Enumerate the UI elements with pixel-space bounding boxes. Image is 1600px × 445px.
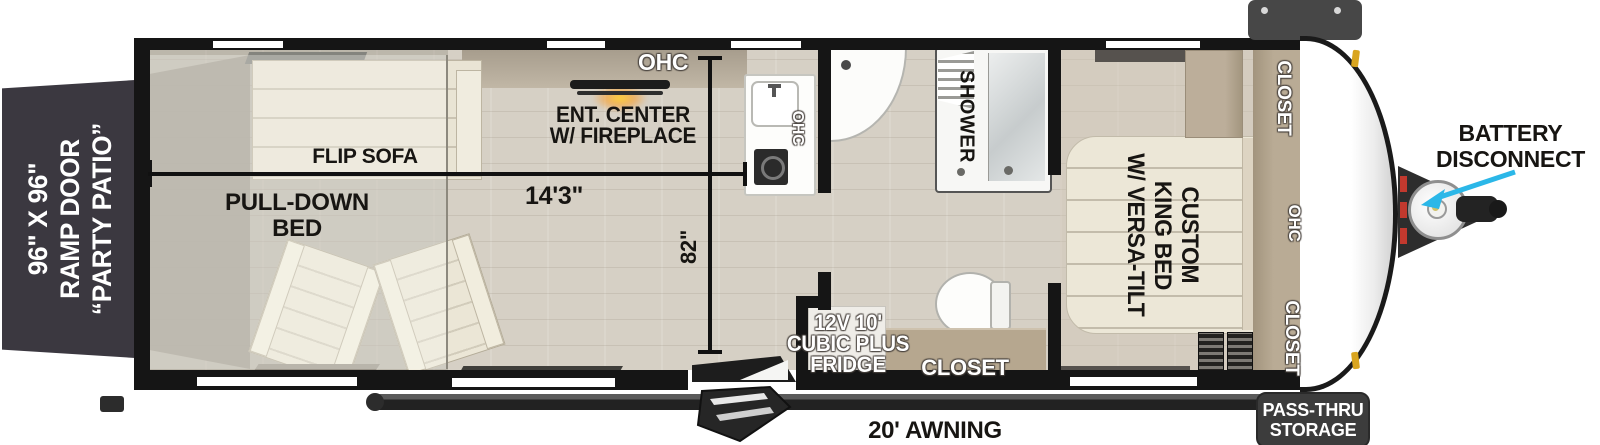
reflector-icon	[1400, 202, 1407, 218]
bedroom-window-strip-top	[1095, 48, 1195, 62]
ohc-kitchen-label: OHC	[788, 101, 806, 155]
cooktop-burner-icon	[761, 156, 785, 180]
pull-down-bed-label: PULL-DOWN BED	[222, 190, 372, 242]
fold-out-steps	[690, 385, 800, 445]
awning-bar	[372, 394, 1312, 410]
bedroom-wall-lower	[1048, 283, 1061, 372]
floorplan-canvas: 96" X 96" RAMP DOOR “PARTY PATIO”	[0, 0, 1600, 445]
flip-sofa-label: FLIP SOFA	[300, 145, 430, 169]
fireplace-icon	[570, 80, 670, 89]
front-closet-bottom-label: CLOSET	[1280, 293, 1302, 383]
corner-sink-faucet-icon	[841, 60, 851, 70]
window-top-bedroom	[1106, 41, 1200, 48]
battery-callout-arrow-icon	[1415, 165, 1520, 213]
window-bottom-bedroom	[1070, 377, 1197, 386]
shower-head-icon	[1004, 166, 1013, 175]
interior-width-dimension: 82"	[676, 222, 702, 272]
fireplace-icon-lower-bar	[577, 91, 663, 95]
window-top-living	[547, 41, 605, 48]
reflector-icon	[1400, 176, 1407, 192]
reflector-icon	[1400, 228, 1407, 244]
bed-step-vent-right	[1227, 332, 1253, 374]
flip-sofa-armrest	[456, 70, 482, 176]
ohc-living-label: OHC	[638, 49, 688, 76]
awning-arm-cap	[366, 393, 384, 411]
clearance-light-top	[1351, 50, 1360, 68]
dimension-line-width	[708, 58, 712, 354]
garage-length-dimension: 14'3"	[525, 182, 583, 211]
bed-step-vent-left	[1198, 332, 1224, 374]
nightstand	[1185, 50, 1243, 138]
awning-label: 20' AWNING	[855, 417, 1015, 445]
dimension-tick-width-top	[698, 56, 722, 60]
king-bed-label: CUSTOM KING BED W/ VERSA-TILT	[1121, 150, 1205, 320]
ohc-bedroom-label: OHC	[1284, 196, 1304, 250]
ramp-door-label: 96" X 96" RAMP DOOR “PARTY PATIO”	[19, 66, 121, 373]
dimension-line-length	[148, 172, 747, 176]
toilet-tank	[990, 281, 1011, 330]
bathroom-closet-label: CLOSET	[900, 355, 1030, 381]
exterior-wall-rear	[134, 38, 150, 390]
shower-label: SHOWER	[955, 52, 978, 182]
window-top-kitchen	[731, 41, 801, 48]
shower-glass	[988, 53, 1045, 181]
front-closet-top-label: CLOSET	[1272, 53, 1294, 143]
bedroom-wall-upper	[1048, 48, 1061, 175]
rear-stabilizer-jack	[100, 396, 124, 412]
front-cap	[1300, 36, 1398, 392]
rock-guard	[1248, 0, 1362, 40]
screw-icon	[1261, 7, 1268, 14]
ent-center-label: ENT. CENTER W/ FIREPLACE	[538, 104, 708, 146]
screw-icon	[1334, 7, 1341, 14]
bath-wall-left-upper	[818, 48, 831, 193]
faucet-icon-stem	[772, 84, 776, 97]
window-top-garage	[213, 41, 283, 48]
pass-thru-storage-badge: PASS-THRU STORAGE	[1256, 392, 1370, 445]
window-bottom-living	[452, 378, 615, 387]
window-bottom-garage	[197, 377, 357, 386]
dimension-tick-width-bottom	[698, 350, 722, 354]
dimension-tick-length-end	[743, 162, 747, 186]
